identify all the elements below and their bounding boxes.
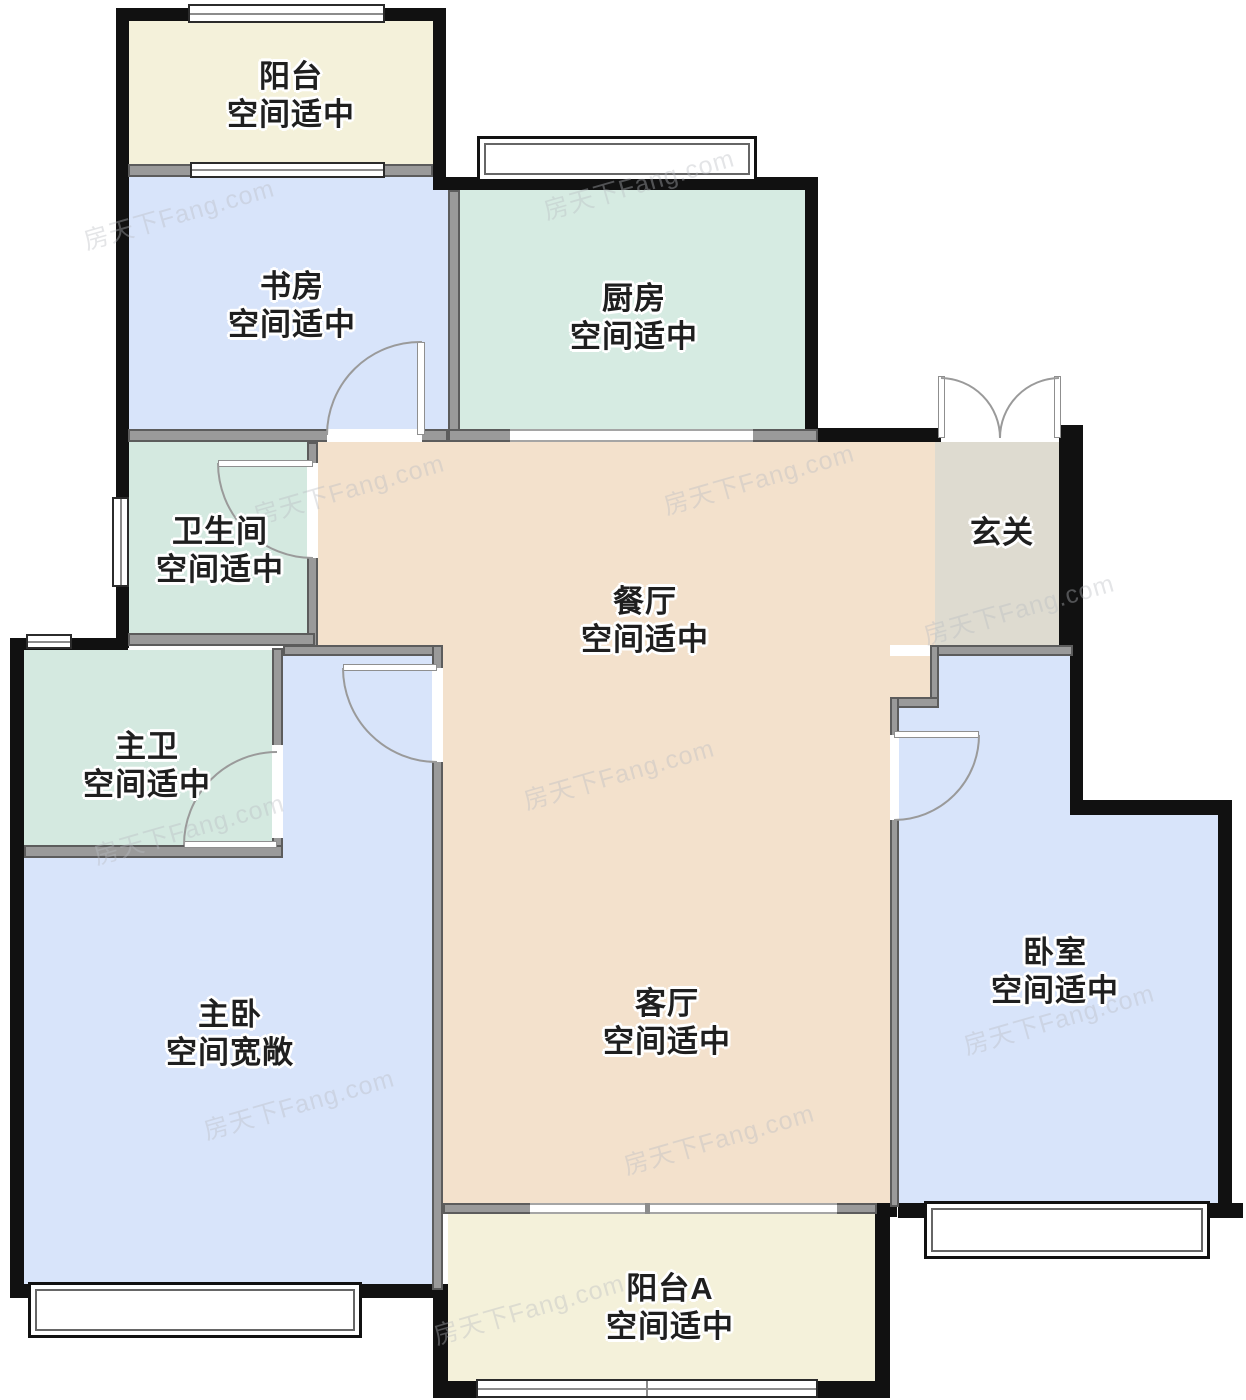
window-glass-line: [190, 13, 383, 15]
bay-window-frame: [931, 1208, 1203, 1252]
room-status: 空间适中: [570, 318, 698, 356]
room-label-entry: 玄关: [970, 514, 1034, 552]
bay-window-frame: [35, 1289, 355, 1331]
room-name: 主卧: [166, 996, 294, 1034]
room-status: 空间适中: [83, 766, 211, 804]
room-name: 卧室: [991, 934, 1119, 972]
room-label-master-bedroom: 主卧 空间宽敞: [166, 996, 294, 1072]
exterior-wall: [1070, 648, 1083, 815]
room-label-dining: 餐厅 空间适中: [581, 583, 709, 659]
door-leaf: [417, 342, 425, 435]
room-master-bedroom-upper: [283, 656, 432, 863]
room-label-balcony-north: 阳台 空间适中: [227, 58, 355, 134]
room-living-sliver: [890, 656, 930, 697]
room-name: 客厅: [603, 985, 731, 1023]
room-status: 空间适中: [991, 972, 1119, 1010]
window: [476, 1379, 818, 1398]
room-status: 空间适中: [581, 621, 709, 659]
room-label-balcony-a: 阳台A 空间适中: [606, 1270, 734, 1346]
room-status: 空间适中: [603, 1023, 731, 1061]
door-leaf: [218, 460, 313, 467]
exterior-wall: [805, 177, 818, 442]
room-name: 卫生间: [156, 513, 284, 551]
door-opening: [890, 735, 899, 820]
room-living: [443, 645, 890, 1203]
window: [188, 4, 385, 23]
room-name: 阳台: [227, 58, 355, 96]
exterior-wall: [875, 1203, 890, 1398]
room-status: 空间适中: [227, 96, 355, 134]
window-glass-line: [120, 499, 122, 585]
window-glass-line: [28, 641, 70, 643]
bay-window: [28, 1282, 362, 1338]
wide-opening: [510, 429, 753, 442]
opening-divider: [645, 1203, 650, 1214]
room-label-study: 书房 空间适中: [228, 268, 356, 344]
door-opening: [327, 429, 422, 442]
exterior-wall: [10, 638, 24, 1298]
room-label-bathroom: 卫生间 空间适中: [156, 513, 284, 589]
exterior-wall: [433, 8, 446, 183]
window-divider: [646, 1381, 648, 1396]
window: [112, 497, 129, 587]
floor-plan: 房天下Fang.com 房天下Fang.com 房天下Fang.com 房天下F…: [0, 0, 1246, 1400]
room-bedroom-mid: [899, 708, 1070, 815]
door-opening: [432, 668, 443, 762]
room-name: 书房: [228, 268, 356, 306]
exterior-wall: [1059, 425, 1083, 655]
interior-wall: [930, 645, 1073, 656]
door-leaf: [343, 664, 437, 671]
interior-wall: [283, 645, 443, 656]
bay-window: [924, 1201, 1210, 1259]
entry-door-leaf: [1054, 376, 1061, 438]
room-name: 阳台A: [606, 1270, 734, 1308]
window: [190, 162, 385, 178]
interior-wall: [448, 190, 460, 442]
door-leaf: [894, 731, 979, 738]
room-name: 玄关: [970, 514, 1034, 552]
room-status: 空间适中: [228, 306, 356, 344]
window: [26, 634, 72, 649]
room-status: 空间宽敞: [166, 1034, 294, 1072]
room-label-kitchen: 厨房 空间适中: [570, 280, 698, 356]
room-bedroom-top: [939, 656, 1070, 708]
room-name: 餐厅: [581, 583, 709, 621]
room-status: 空间适中: [156, 551, 284, 589]
room-status: 空间适中: [606, 1308, 734, 1346]
entry-door-opening: [941, 426, 1059, 442]
exterior-wall: [1070, 800, 1232, 815]
room-label-bedroom: 卧室 空间适中: [991, 934, 1119, 1010]
entry-door-leaf: [938, 376, 945, 438]
room-name: 主卫: [83, 728, 211, 766]
exterior-wall: [1218, 800, 1232, 1215]
room-label-living: 客厅 空间适中: [603, 985, 731, 1061]
wide-opening: [530, 1203, 837, 1214]
room-name: 厨房: [570, 280, 698, 318]
window-glass-line: [192, 169, 383, 171]
room-label-master-bath: 主卫 空间适中: [83, 728, 211, 804]
